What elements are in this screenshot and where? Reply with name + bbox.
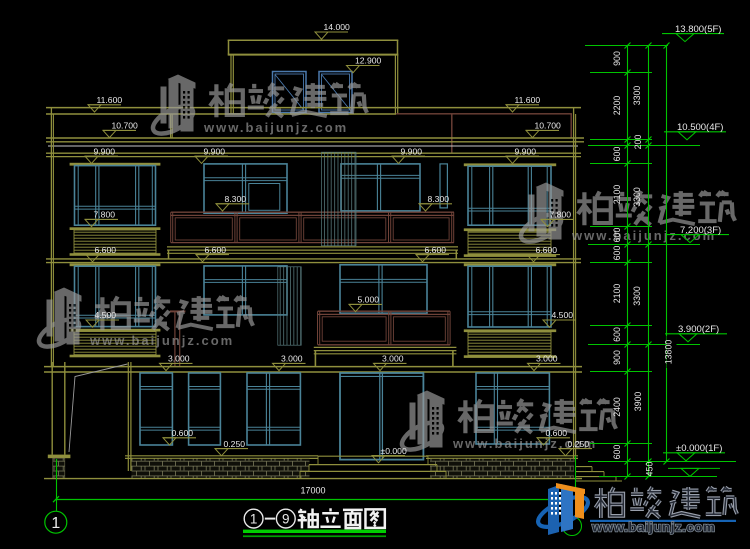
svg-text:600: 600: [612, 147, 622, 162]
svg-text:3300: 3300: [632, 187, 642, 207]
svg-text:11.600: 11.600: [515, 95, 541, 105]
svg-text:8.300: 8.300: [428, 194, 450, 204]
svg-text:13.800(5F): 13.800(5F): [675, 24, 721, 35]
svg-text:5.000: 5.000: [358, 295, 380, 305]
svg-text:9: 9: [282, 511, 290, 526]
svg-text:1: 1: [51, 515, 60, 532]
svg-text:14.000: 14.000: [324, 22, 351, 32]
svg-text:600: 600: [612, 327, 622, 342]
svg-text:600: 600: [612, 445, 622, 460]
svg-text:900: 900: [612, 350, 622, 365]
svg-text:4.500: 4.500: [552, 310, 574, 320]
svg-text:10.700: 10.700: [535, 121, 562, 131]
svg-text:12.900: 12.900: [355, 56, 382, 66]
svg-text:3.000: 3.000: [382, 354, 404, 364]
svg-text:10.500(4F): 10.500(4F): [677, 122, 723, 133]
svg-text:600: 600: [612, 246, 622, 261]
svg-text:6.600: 6.600: [205, 245, 227, 255]
svg-text:9.900: 9.900: [204, 146, 226, 156]
svg-text:17000: 17000: [300, 486, 325, 496]
svg-text:0.600: 0.600: [172, 428, 194, 438]
svg-text:7.800: 7.800: [94, 210, 116, 220]
svg-text:9.900: 9.900: [94, 146, 116, 156]
svg-text:±0.000: ±0.000: [381, 446, 407, 456]
svg-text:8.300: 8.300: [225, 194, 247, 204]
svg-text:10.700: 10.700: [112, 121, 139, 131]
svg-text:600: 600: [612, 228, 622, 243]
svg-text:7.200(3F): 7.200(3F): [680, 225, 721, 236]
svg-text:0.250: 0.250: [224, 439, 246, 449]
svg-text:6.600: 6.600: [425, 245, 447, 255]
svg-text:2200: 2200: [612, 96, 622, 116]
svg-text:2100: 2100: [612, 185, 622, 205]
svg-text:2100: 2100: [612, 284, 622, 304]
svg-text:±0.000(1F): ±0.000(1F): [676, 443, 722, 454]
svg-text:1: 1: [250, 511, 258, 526]
svg-text:3300: 3300: [632, 86, 642, 106]
svg-text:6.600: 6.600: [95, 245, 117, 255]
svg-text:900: 900: [612, 51, 622, 66]
svg-text:9.900: 9.900: [515, 146, 537, 156]
svg-text:0.250: 0.250: [568, 439, 590, 449]
svg-text:3300: 3300: [632, 286, 642, 306]
svg-text:6.600: 6.600: [536, 245, 558, 255]
svg-text:3900: 3900: [633, 392, 643, 412]
svg-text:7.800: 7.800: [550, 210, 572, 220]
svg-text:www.baijunjz.com: www.baijunjz.com: [591, 519, 715, 534]
svg-text:11.600: 11.600: [97, 95, 123, 105]
svg-text:3.000: 3.000: [536, 354, 558, 364]
svg-text:3.900(2F): 3.900(2F): [678, 324, 719, 335]
svg-text:3.000: 3.000: [281, 354, 303, 364]
svg-text:0.600: 0.600: [546, 428, 568, 438]
svg-text:4.500: 4.500: [95, 310, 117, 320]
svg-text:9.900: 9.900: [401, 146, 423, 156]
svg-text:2400: 2400: [612, 397, 622, 417]
svg-text:3.000: 3.000: [168, 354, 190, 364]
svg-text:200: 200: [633, 135, 643, 150]
svg-text:450: 450: [645, 462, 655, 477]
svg-text:13800: 13800: [664, 340, 674, 365]
